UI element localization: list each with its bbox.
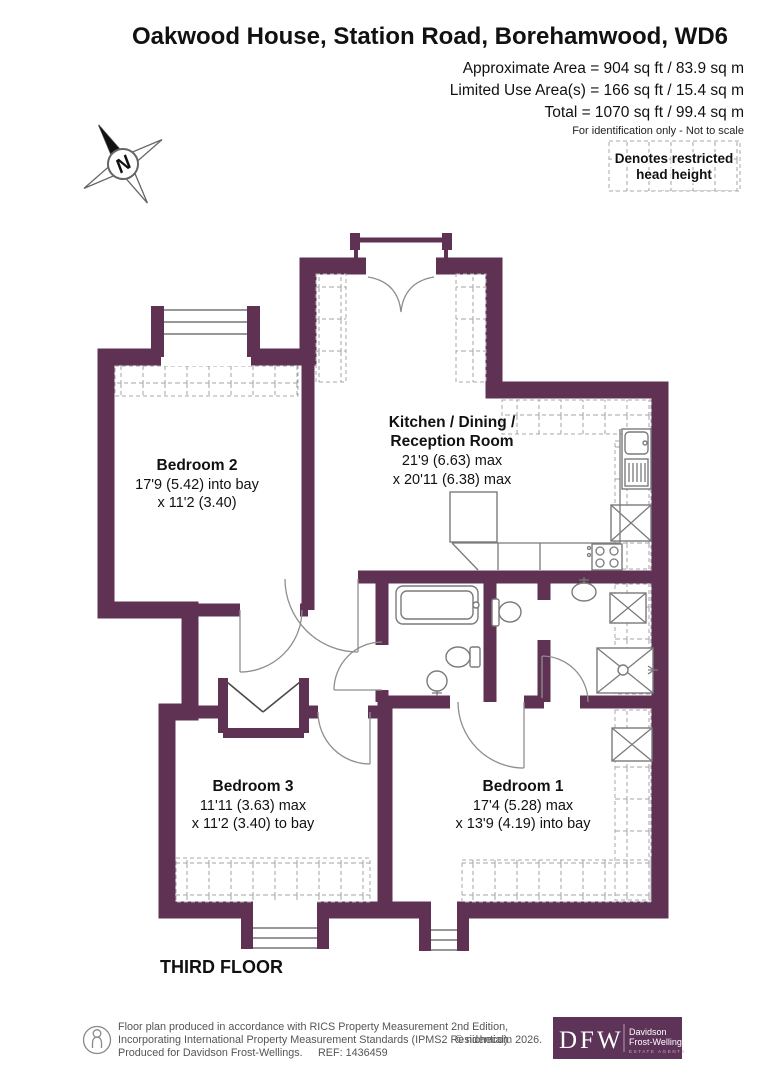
total-area: Total = 1070 sq ft / 99.4 sq m: [545, 104, 744, 121]
person-icon: [84, 1027, 111, 1054]
skylight-icon-kitchen: [611, 505, 651, 541]
footer-ref: REF: 1436459: [318, 1047, 388, 1059]
bay3-wall-right: [317, 903, 329, 949]
bedroom2-dim2: x 11'2 (3.40): [157, 495, 236, 511]
hob-icon: [588, 544, 623, 570]
kitchen-dim2: x 20'11 (6.38) max: [393, 472, 512, 488]
bedroom1-bay-opening: [431, 901, 457, 949]
restricted-zone-bedroom1-bottom: [462, 860, 651, 902]
restricted-zone-kitchen-left: [316, 274, 346, 382]
toilet-icon-bathroom: [446, 647, 480, 667]
footer-line1: Floor plan produced in accordance with R…: [118, 1021, 508, 1033]
scale-disclaimer: For identification only - Not to scale: [572, 125, 744, 137]
bay3-wall-left: [241, 903, 253, 949]
footer: Floor plan produced in accordance with R…: [84, 1017, 687, 1059]
skylight-icon-shower-room: [610, 593, 646, 623]
bath-icon: [396, 586, 479, 624]
dfw-logo-name1: Davidson: [629, 1027, 667, 1037]
footer-line3: Produced for Davidson Frost-Wellings.: [118, 1047, 303, 1059]
dfw-logo-initials: DFW: [559, 1027, 624, 1054]
floorplan-page: Oakwood House, Station Road, Borehamwood…: [0, 0, 764, 1080]
compass-north-icon: N: [60, 101, 187, 228]
bedroom1-dim2: x 13'9 (4.19) into bay: [456, 816, 592, 832]
footer-copyright: © nichecom 2026.: [455, 1034, 542, 1046]
kitchen-name-line2: Reception Room: [390, 433, 513, 450]
footer-line2: Incorporating International Property Mea…: [118, 1034, 510, 1046]
floorplan-canvas: Oakwood House, Station Road, Borehamwood…: [0, 0, 764, 1080]
kitchen-island: [450, 492, 497, 542]
legend-text-line1: Denotes restricted: [615, 151, 734, 166]
bedroom3-dim1: 11'11 (3.63) max: [200, 798, 307, 814]
approximate-area: Approximate Area = 904 sq ft / 83.9 sq m: [463, 60, 744, 77]
skylight-icon-bedroom1: [612, 728, 652, 761]
restricted-hatch-swatch: [609, 141, 740, 191]
bedroom1-name: Bedroom 1: [483, 778, 564, 795]
bay2-wall-left: [151, 306, 164, 357]
kitchen-name-line1: Kitchen / Dining /: [389, 414, 516, 431]
bay1-wall-left: [419, 903, 431, 951]
floor-label: THIRD FLOOR: [160, 957, 283, 977]
bedroom3-bay-opening: [253, 901, 317, 949]
bay1-wall-right: [457, 903, 469, 951]
bedroom2-bay-opening: [161, 306, 251, 366]
floorplan-drawing: Kitchen / Dining / Reception Room 21'9 (…: [106, 233, 660, 977]
dfw-logo-tagline: ESTATE AGENTS: [629, 1049, 686, 1054]
restricted-zone-kitchen-step: [456, 274, 486, 382]
dfw-logo-name2: Frost-Wellings: [629, 1037, 687, 1047]
shower-icon: [597, 648, 658, 693]
legend-text-line2: head height: [636, 167, 712, 182]
bedroom3-dim2: x 11'2 (3.40) to bay: [192, 816, 315, 832]
kitchen-dim1: 21'9 (6.63) max: [402, 453, 503, 469]
limited-use-area: Limited Use Area(s) = 166 sq ft / 15.4 s…: [450, 82, 744, 99]
dfw-logo: DFW Davidson Frost-Wellings ESTATE AGENT…: [553, 1017, 687, 1059]
bedroom1-dim1: 17'4 (5.28) max: [473, 798, 574, 814]
bedroom3-name: Bedroom 3: [213, 778, 294, 795]
bay2-wall-right: [247, 306, 260, 357]
kitchen-sink-unit-icon: [622, 429, 651, 489]
page-title: Oakwood House, Station Road, Borehamwood…: [132, 23, 728, 50]
bedroom2-name: Bedroom 2: [157, 457, 238, 474]
restricted-zone-bedroom3-bottom: [176, 858, 370, 902]
restricted-height-legend: Denotes restricted head height: [609, 141, 740, 191]
restricted-zone-bedroom2: [115, 366, 298, 396]
terrace-opening: [366, 244, 436, 275]
bedroom2-dim1: 17'9 (5.42) into bay: [135, 477, 259, 493]
